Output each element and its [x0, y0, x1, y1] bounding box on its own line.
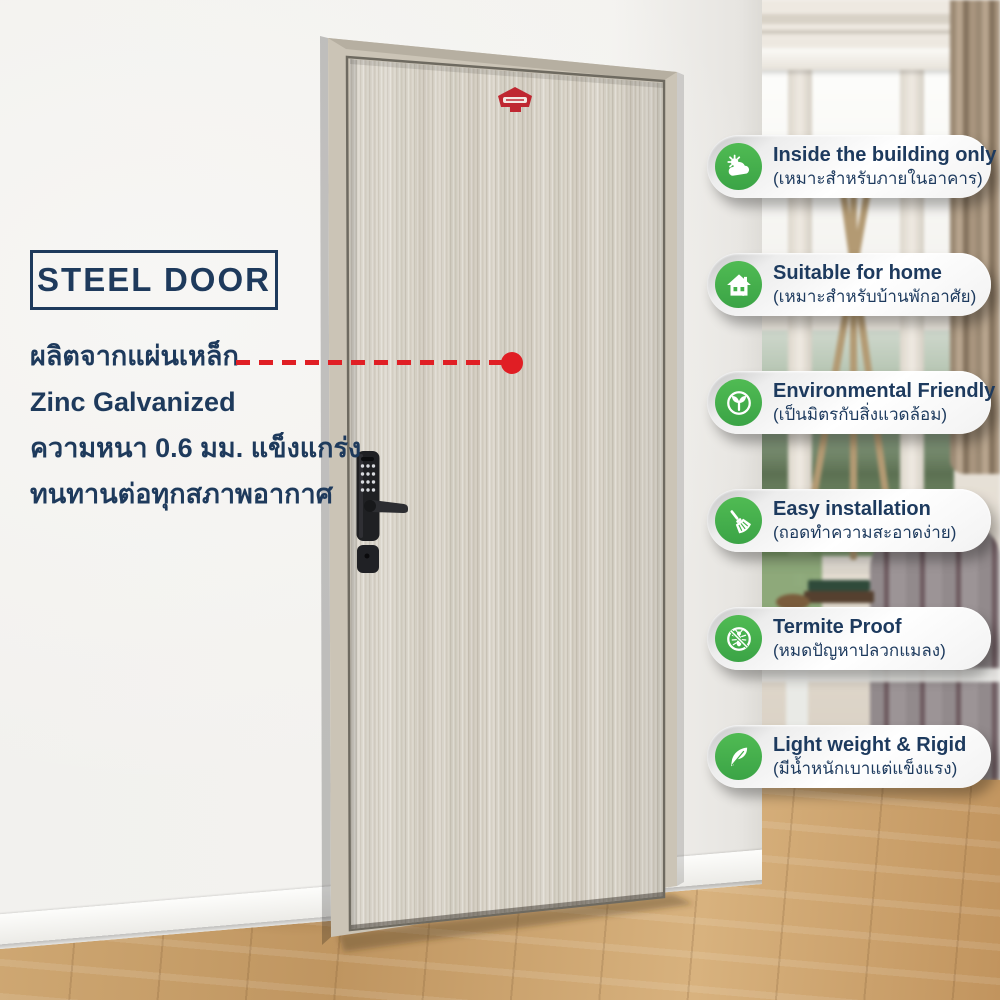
callout-dot	[501, 352, 523, 374]
feature-label-th: (เหมาะสำหรับบ้านพักอาศัย)	[773, 286, 976, 308]
door-leaf[interactable]	[350, 59, 663, 929]
feature-icon-circle	[715, 143, 762, 190]
callout-dashed-line	[236, 360, 502, 365]
frame-shadow-right	[677, 72, 684, 886]
feature-pill: Easy installation (ถอดทำความสะอาดง่าย)	[707, 489, 991, 552]
feature-pill: Environmental Friendly (เป็นมิตรกับสิ่งแ…	[707, 371, 991, 434]
feature-label-th: (ถอดทำความสะอาดง่าย)	[773, 522, 956, 544]
page-title: STEEL DOOR	[37, 261, 271, 299]
feature-icon-circle	[715, 615, 762, 662]
feature-label-th: (เหมาะสำหรับภายในอาคาร)	[773, 168, 996, 190]
feature-label-en: Suitable for home	[773, 261, 976, 286]
house-icon	[724, 270, 754, 300]
sun-cloud-icon	[724, 152, 754, 182]
scene: STEEL DOOR ผลิตจากแผ่นเหล็ก Zinc Galvani…	[0, 0, 1000, 1000]
feature-icon-circle	[715, 497, 762, 544]
broom-icon	[724, 506, 754, 536]
feature-icon-circle	[715, 733, 762, 780]
feature-pill: Inside the building only (เหมาะสำหรับภาย…	[707, 135, 991, 198]
feature-pill: Light weight & Rigid (มีน้ำหนักเบาแต่แข็…	[707, 725, 991, 788]
feature-icon-circle	[715, 379, 762, 426]
description-line: Zinc Galvanized	[30, 379, 360, 425]
feature-pill: Termite Proof (หมดปัญหาปลวกแมลง)	[707, 607, 991, 670]
feature-label-th: (มีน้ำหนักเบาแต่แข็งแรง)	[773, 758, 966, 780]
description-line: ทนทานต่อทุกสภาพอากาศ	[30, 471, 360, 517]
feature-icon-circle	[715, 261, 762, 308]
feature-pill: Suitable for home (เหมาะสำหรับบ้านพักอาศ…	[707, 253, 991, 316]
feature-label-en: Termite Proof	[773, 615, 946, 640]
feature-label-th: (เป็นมิตรกับสิ่งแวดล้อม)	[773, 404, 995, 426]
feature-label-en: Light weight & Rigid	[773, 733, 966, 758]
feather-icon	[724, 742, 754, 772]
no-termite-icon	[724, 624, 754, 654]
description-line: ความหนา 0.6 มม. แข็งแกร่ง	[30, 425, 360, 471]
sprout-icon	[724, 388, 754, 418]
feature-label-en: Inside the building only	[773, 143, 996, 168]
description-line: ผลิตจากแผ่นเหล็ก	[30, 333, 360, 379]
feature-label-th: (หมดปัญหาปลวกแมลง)	[773, 640, 946, 662]
feature-label-en: Easy installation	[773, 497, 956, 522]
feature-label-en: Environmental Friendly	[773, 379, 995, 404]
title-box: STEEL DOOR	[30, 250, 278, 310]
